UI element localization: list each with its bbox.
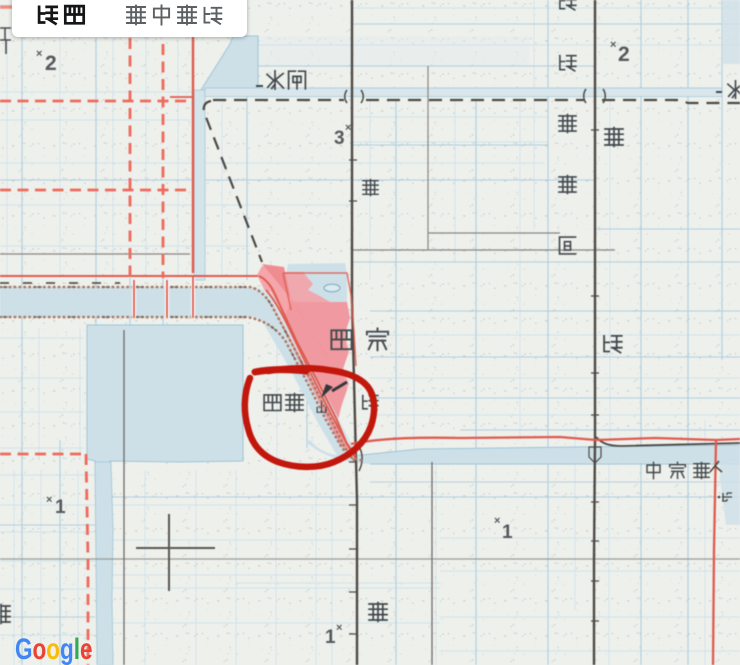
svg-text:3: 3 [334,128,345,149]
svg-text:1: 1 [502,522,513,543]
svg-text:×: × [46,494,52,506]
svg-text:1: 1 [55,497,66,518]
svg-text:×: × [36,48,42,60]
svg-text:2: 2 [618,43,630,66]
svg-text:1: 1 [325,627,336,648]
svg-text:×: × [336,622,342,634]
svg-text:×: × [494,515,500,527]
svg-text:×: × [610,39,616,51]
svg-text:2: 2 [45,52,57,75]
svg-text:×: × [345,122,351,134]
